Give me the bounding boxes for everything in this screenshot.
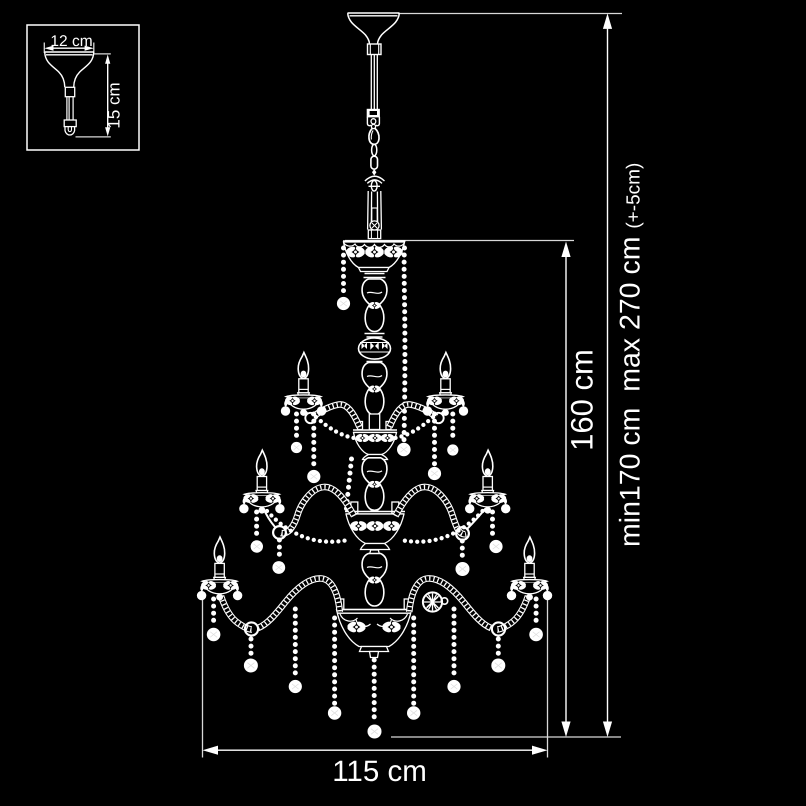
svg-text:15 cm: 15 cm: [105, 82, 124, 128]
svg-text:160 cm: 160 cm: [565, 349, 600, 451]
svg-text:115 cm: 115 cm: [332, 755, 427, 788]
